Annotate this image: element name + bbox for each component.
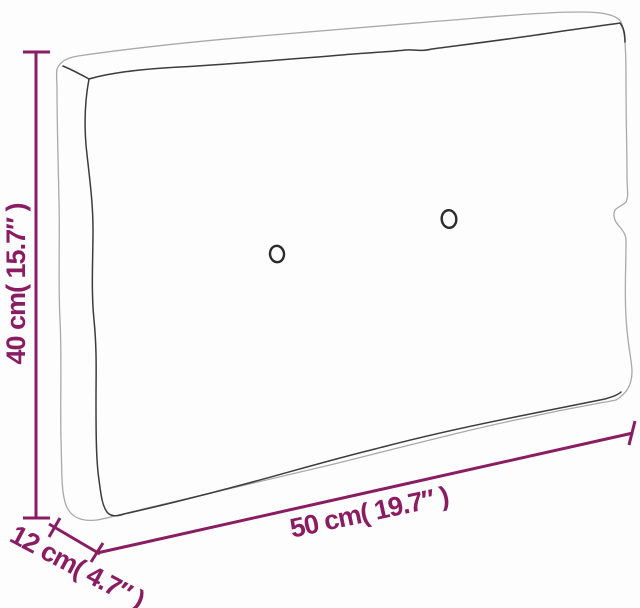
depth-dimension: 12 cm( 4.7″ ) — [5, 518, 149, 608]
diagram-canvas: 40 cm( 15.7″ ) 50 cm( 19.7″ ) 12 cm( 4.7… — [0, 0, 640, 608]
cushion-button-right — [441, 209, 457, 228]
depth-dimension-tick-left — [49, 518, 60, 537]
height-dimension-label: 40 cm( 15.7″ ) — [1, 203, 31, 364]
height-dimension: 40 cm( 15.7″ ) — [1, 52, 50, 518]
depth-dimension-label: 12 cm( 4.7″ ) — [5, 519, 149, 608]
width-dimension-label: 50 cm( 19.7″ ) — [287, 481, 451, 544]
cushion-left-bottom-seam — [85, 79, 621, 516]
cushion-drawing — [57, 12, 632, 520]
cushion-dimension-diagram: 40 cm( 15.7″ ) 50 cm( 19.7″ ) 12 cm( 4.7… — [0, 0, 640, 608]
cushion-outer-silhouette — [57, 12, 632, 520]
cushion-corner-seam — [63, 66, 89, 79]
cushion-top-seam — [89, 23, 625, 79]
width-dimension: 50 cm( 19.7″ ) — [97, 421, 635, 553]
cushion-button-left — [269, 245, 285, 263]
